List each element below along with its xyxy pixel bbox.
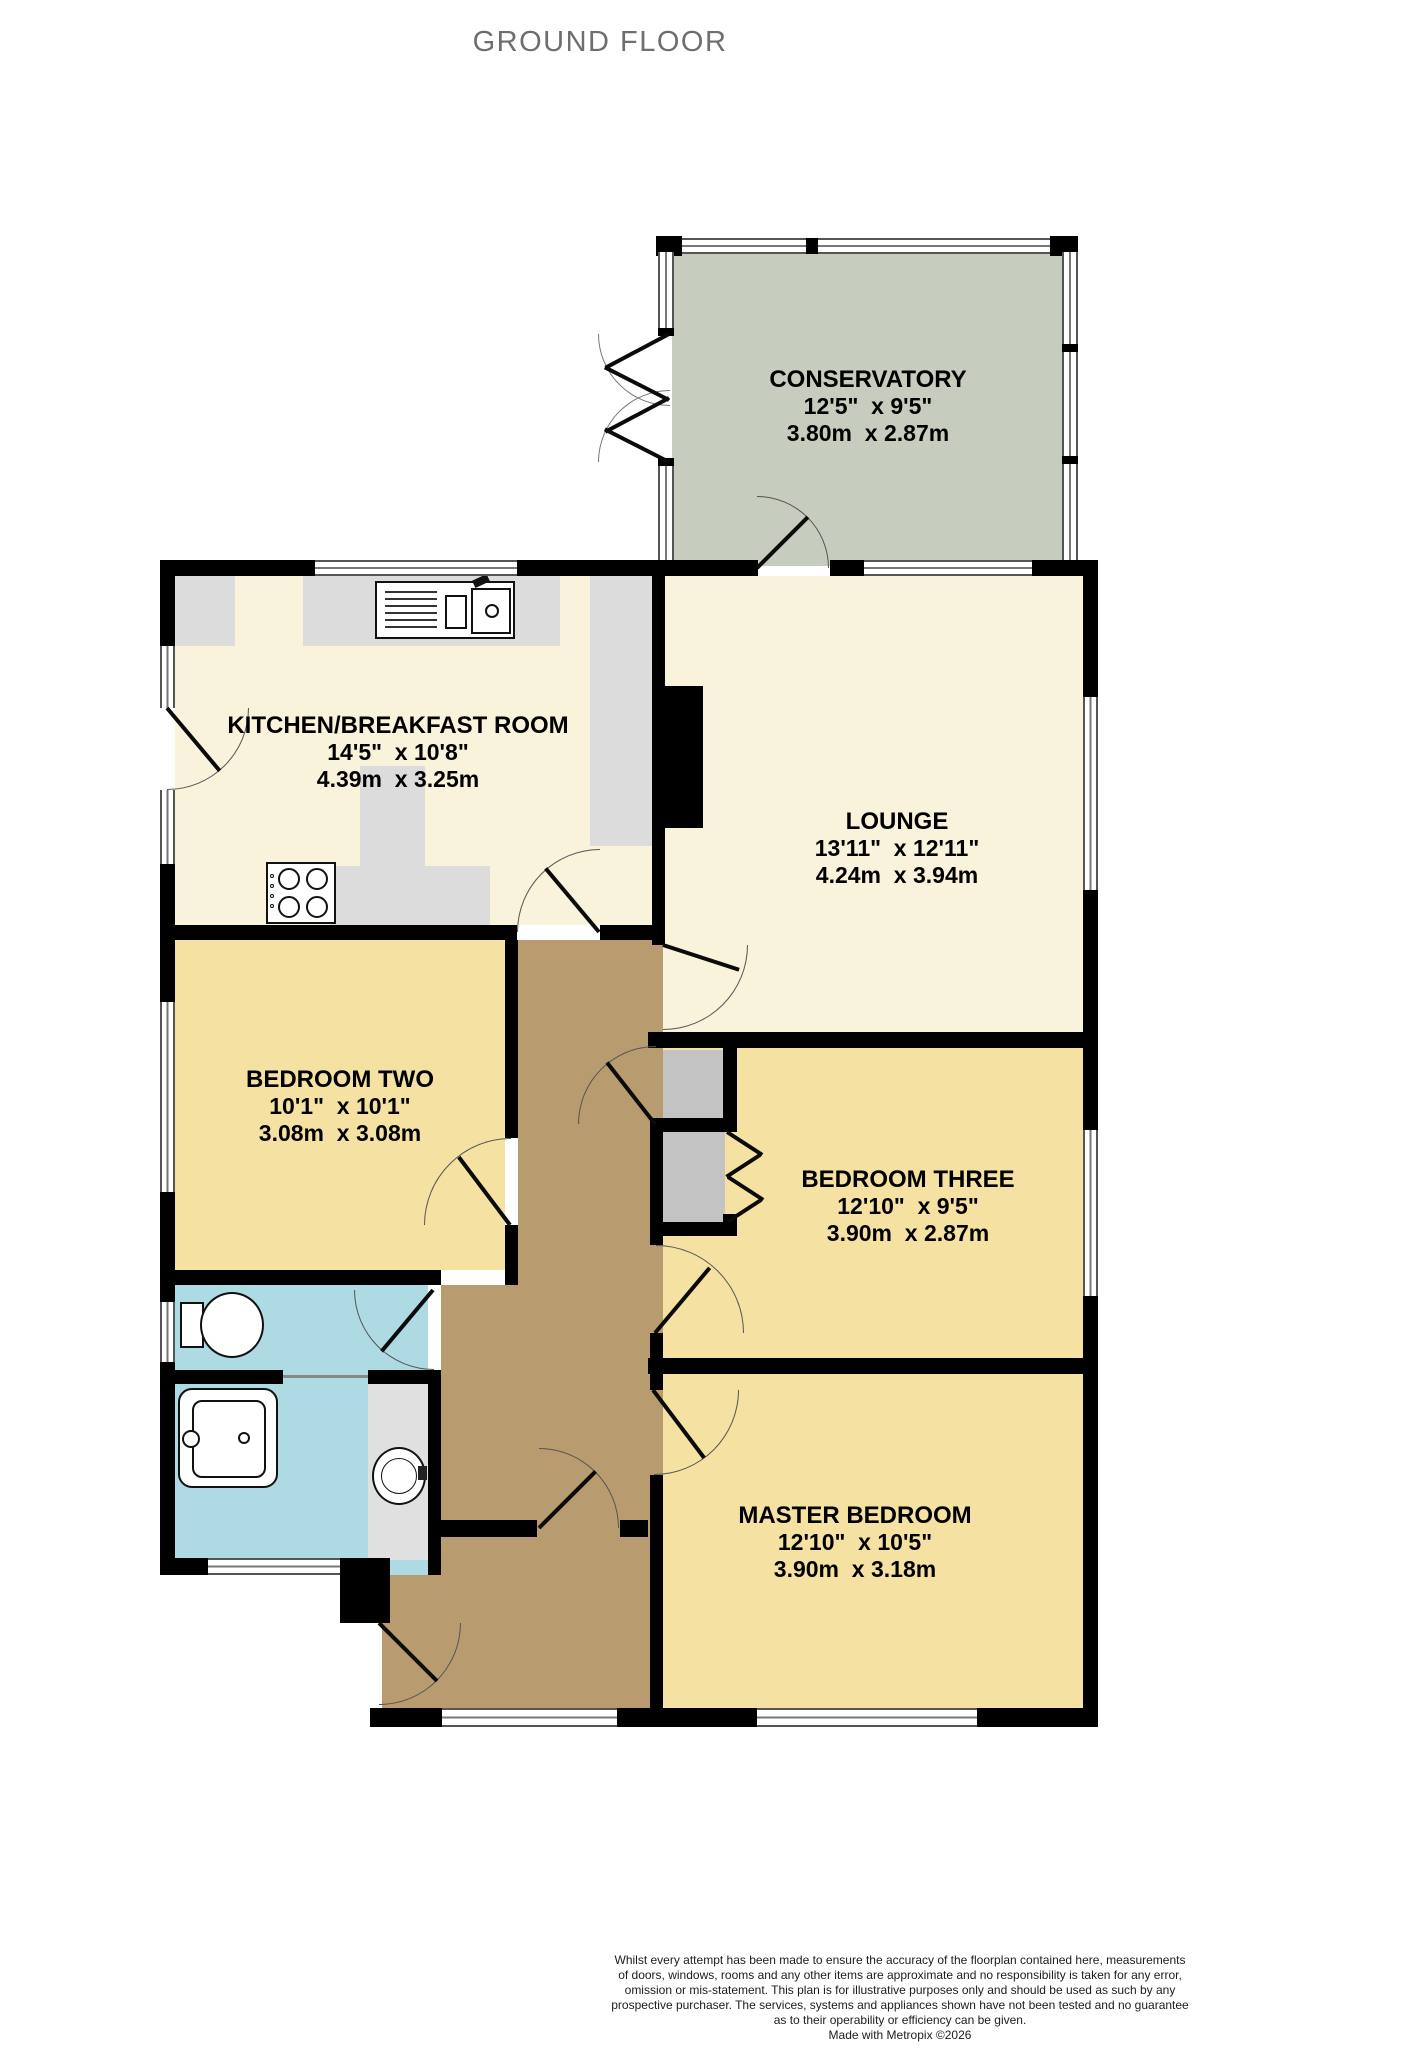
wall — [441, 1520, 537, 1537]
wall — [160, 1192, 175, 1302]
wall — [428, 1370, 441, 1575]
label-lounge: LOUNGE 13'11" x 12'11" 4.24m x 3.94m — [815, 808, 980, 889]
burner — [278, 896, 300, 918]
wall — [160, 1362, 175, 1575]
burner — [278, 868, 300, 890]
basin-tap-icon — [418, 1466, 427, 1480]
window — [757, 1708, 977, 1727]
sink-main-bowl — [471, 588, 511, 634]
wall — [370, 1708, 442, 1727]
wall — [160, 1558, 208, 1575]
wall — [1083, 890, 1098, 1130]
disclaimer-line: prospective purchaser. The services, sys… — [560, 1998, 1240, 2013]
wall — [1062, 456, 1078, 464]
floorplan: GROUND FLOOR — [0, 0, 1406, 2048]
wall — [806, 238, 818, 254]
partition-line — [283, 1375, 368, 1378]
wall — [650, 1118, 737, 1132]
window — [160, 1302, 175, 1362]
disclaimer-line: omission or mis-statement. This plan is … — [560, 1983, 1240, 1998]
sink-drain — [485, 604, 499, 618]
window — [160, 646, 175, 708]
kitchen-sink-icon — [375, 581, 515, 639]
kitchen-counter — [590, 576, 652, 846]
entrance-hall — [441, 1532, 659, 1710]
window — [864, 560, 1032, 576]
metropix-credit: Made with Metropix ©2026 — [560, 2028, 1240, 2043]
knob — [270, 904, 274, 908]
label-master-bedroom: MASTER BEDROOM 12'10" x 10'5" 3.90m x 3.… — [738, 1502, 971, 1583]
sink-small-bowl — [445, 595, 467, 629]
bath-tap-icon — [182, 1430, 200, 1448]
knob — [270, 894, 274, 898]
sink-drainer — [385, 591, 437, 631]
window — [442, 1708, 617, 1727]
wall — [977, 1708, 1098, 1727]
closet-bedroom-three — [663, 1130, 725, 1222]
basin-bowl — [381, 1458, 417, 1494]
label-bedroom-two: BEDROOM TWO 10'1" x 10'1" 3.08m x 3.08m — [246, 1066, 434, 1147]
hob-icon — [266, 862, 336, 924]
disclaimer-line: as to their operability or efficiency ca… — [560, 2013, 1240, 2028]
disclaimer-line: Whilst every attempt has been made to en… — [560, 1953, 1240, 1968]
wall — [650, 1222, 737, 1236]
chimney-breast — [665, 686, 703, 828]
window — [1083, 1130, 1098, 1296]
knob — [270, 884, 274, 888]
bath-drain — [238, 1432, 250, 1444]
label-conservatory: CONSERVATORY 12'5" x 9'5" 3.80m x 2.87m — [769, 366, 966, 447]
wall — [517, 560, 672, 576]
wall — [505, 1225, 518, 1285]
page-title: GROUND FLOOR — [473, 26, 728, 59]
wall — [160, 1270, 441, 1285]
kitchen-counter — [330, 866, 490, 926]
label-bedroom-three: BEDROOM THREE 12'10" x 9'5" 3.90m x 2.87… — [801, 1166, 1014, 1247]
window — [1062, 352, 1078, 456]
burner — [306, 896, 328, 918]
wall — [620, 1520, 648, 1537]
kitchen-counter-gap — [235, 576, 303, 646]
window — [1062, 464, 1078, 560]
window — [160, 790, 175, 864]
wall — [505, 940, 518, 1138]
window — [160, 1002, 175, 1192]
wall — [160, 560, 315, 576]
toilet-bowl — [200, 1292, 264, 1358]
wall — [830, 560, 864, 576]
wall — [617, 1708, 757, 1727]
wall — [652, 576, 665, 945]
wall — [160, 560, 175, 646]
closet-hall — [663, 1050, 723, 1118]
wall — [1032, 560, 1098, 576]
burner — [306, 868, 328, 890]
wall — [1083, 576, 1098, 697]
window — [818, 238, 1050, 254]
window — [682, 238, 806, 254]
wall — [340, 1558, 390, 1623]
knob — [270, 874, 274, 878]
label-kitchen: KITCHEN/BREAKFAST ROOM 14'5" x 10'8" 4.3… — [227, 712, 568, 793]
window — [658, 252, 674, 328]
wall — [648, 1032, 1098, 1048]
bath-icon — [178, 1388, 278, 1488]
disclaimer: Whilst every attempt has been made to en… — [560, 1953, 1240, 2043]
bath-tub — [192, 1400, 266, 1478]
wall — [650, 1475, 663, 1710]
window — [1083, 697, 1098, 890]
window — [208, 1558, 342, 1575]
wall — [160, 1370, 283, 1384]
wall — [1062, 344, 1078, 352]
window — [1062, 252, 1078, 344]
wall — [648, 1358, 1098, 1374]
wall — [160, 925, 517, 940]
disclaimer-line: of doors, windows, rooms and any other i… — [560, 1968, 1240, 1983]
window — [315, 560, 517, 576]
window — [658, 466, 674, 560]
